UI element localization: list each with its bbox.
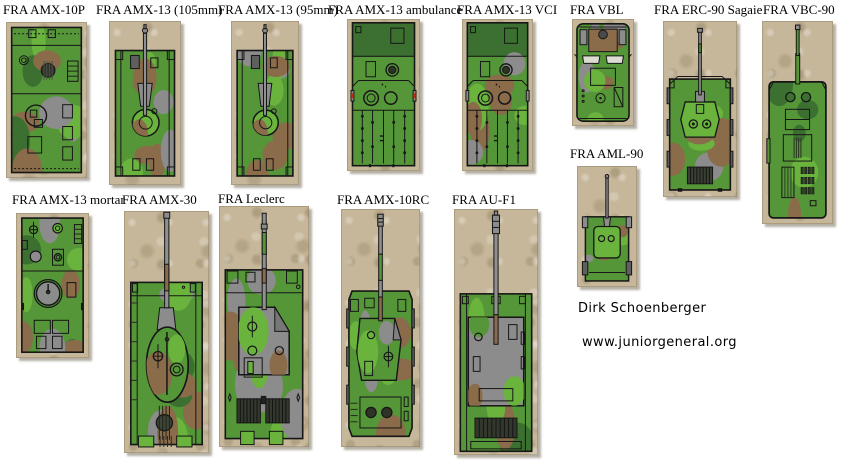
credit-author: Dirk Schoenberger [578, 302, 706, 316]
vehicle-image-amx-13-105 [109, 21, 181, 185]
vehicle-tile-au-f1 [454, 209, 538, 455]
vehicle-tile-amx-13-95 [231, 21, 299, 185]
vehicle-tile-aml-90 [577, 166, 637, 287]
credit-website: www.juniorgeneral.org [582, 336, 737, 350]
vehicle-image-amx-13-95 [231, 21, 299, 185]
vehicle-image-amx-30 [124, 211, 209, 453]
vehicle-image-amx-10p [6, 22, 87, 178]
vehicle-tile-amx-30 [124, 211, 209, 453]
vehicle-image-vbl [572, 19, 634, 126]
vehicle-label-amx-13-105: FRA AMX-13 (105mm) [96, 3, 222, 16]
vehicle-tile-vbl [572, 19, 634, 126]
vehicle-label-amx-13-mortar: FRA AMX-13 mortar [12, 193, 125, 206]
vehicle-image-amx-13-vci [462, 19, 533, 171]
vehicle-label-au-f1: FRA AU-F1 [452, 193, 516, 206]
vehicle-tile-leclerc [219, 206, 309, 447]
vehicle-tile-amx-13-ambulance [347, 19, 420, 171]
vehicle-label-vbl: FRA VBL [570, 3, 624, 16]
vehicle-tile-erc-90 [663, 21, 737, 197]
vehicle-image-vbc-90 [762, 21, 833, 224]
unit-sheet: Dirk Schoenberger www.juniorgeneral.org … [0, 0, 863, 472]
vehicle-image-amx-10rc [341, 209, 420, 447]
vehicle-image-amx-13-ambulance [347, 19, 420, 171]
vehicle-tile-amx-13-mortar [16, 213, 89, 358]
vehicle-tile-amx-10p [6, 22, 87, 178]
vehicle-label-amx-10p: FRA AMX-10P [3, 3, 85, 16]
vehicle-label-leclerc: FRA Leclerc [218, 192, 285, 205]
vehicle-image-erc-90 [663, 21, 737, 197]
vehicle-image-leclerc [219, 206, 309, 447]
vehicle-label-erc-90: FRA ERC-90 Sagaie [654, 3, 762, 16]
vehicle-tile-amx-13-vci [462, 19, 533, 171]
vehicle-image-amx-13-mortar [16, 213, 89, 358]
vehicle-label-amx-30: FRA AMX-30 [122, 193, 197, 206]
vehicle-tile-amx-13-105 [109, 21, 181, 185]
vehicle-tile-vbc-90 [762, 21, 833, 224]
vehicle-image-aml-90 [577, 166, 637, 287]
vehicle-label-amx-10rc: FRA AMX-10RC [337, 193, 429, 206]
vehicle-tile-amx-10rc [341, 209, 420, 447]
vehicle-image-au-f1 [454, 209, 538, 455]
vehicle-label-amx-13-95: FRA AMX-13 (95mm) [218, 3, 338, 16]
vehicle-label-amx-13-ambulance: FRA AMX-13 ambulance [328, 3, 462, 16]
vehicle-label-amx-13-vci: FRA AMX-13 VCI [457, 3, 557, 16]
vehicle-label-aml-90: FRA AML-90 [570, 147, 643, 160]
vehicle-label-vbc-90: FRA VBC-90 [763, 3, 835, 16]
